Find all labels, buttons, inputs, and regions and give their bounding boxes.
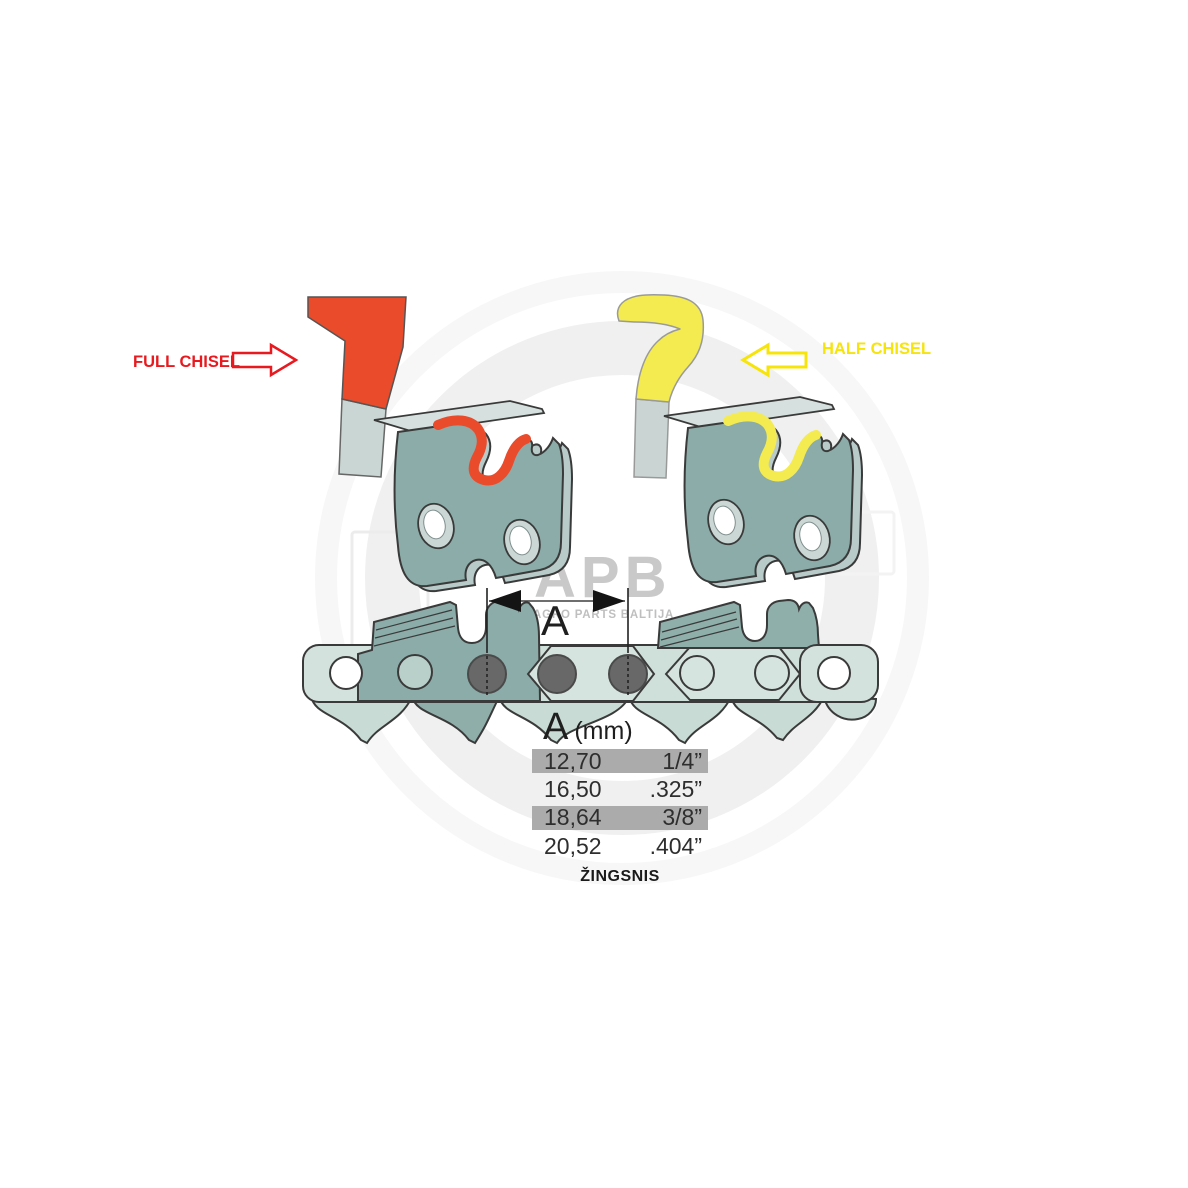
cutter-link-full-chisel <box>374 401 572 591</box>
pitch-inch: .325” <box>650 776 702 803</box>
pitch-inch: 1/4” <box>662 748 702 775</box>
pitch-caption: ŽINGSNIS <box>532 868 708 886</box>
table-row: 18,64 3/8” <box>532 806 708 830</box>
chain-rivet <box>538 655 576 693</box>
table-row: 20,52 .404” <box>532 834 708 858</box>
pitch-table: 12,70 1/4” 16,50 .325” 18,64 3/8” 20,52 … <box>532 749 708 863</box>
table-row: 12,70 1/4” <box>532 749 708 773</box>
chain-cutter-left <box>358 600 540 701</box>
header-symbol: A <box>543 706 568 748</box>
chain-hole <box>818 657 850 689</box>
header-unit: (mm) <box>574 717 632 745</box>
half-chisel-label: HALF CHISEL <box>822 340 931 359</box>
table-row: 16,50 .325” <box>532 777 708 801</box>
full-chisel-profile <box>308 297 406 477</box>
chain-hole <box>330 657 362 689</box>
pitch-mm: 12,70 <box>544 748 602 775</box>
pitch-mm: 16,50 <box>544 776 602 803</box>
half-chisel-shape <box>618 295 704 402</box>
full-chisel-shape <box>308 297 406 409</box>
pitch-inch: .404” <box>650 833 702 860</box>
cutter-link-half-chisel <box>664 397 862 587</box>
pitch-inch: 3/8” <box>662 804 702 831</box>
chain-hole-filled <box>398 655 432 689</box>
pitch-table-header: A(mm) <box>543 706 633 749</box>
pitch-mm: 18,64 <box>544 804 602 831</box>
pitch-mm: 20,52 <box>544 833 602 860</box>
chain-hole-outlined <box>680 656 714 690</box>
full-chisel-label: FULL CHISEL <box>133 353 240 372</box>
full-chisel-stem <box>339 399 386 477</box>
chain-hole-outlined <box>755 656 789 690</box>
drive-link-tooth <box>629 696 731 743</box>
half-chisel-stem <box>634 399 669 478</box>
dimension-label: A <box>541 597 569 645</box>
drive-link-tooth <box>311 696 412 743</box>
illustration <box>0 0 1188 1188</box>
arrow-left-icon <box>743 345 806 375</box>
arrow-right-icon <box>233 345 296 375</box>
chainsaw-chain-pitch-diagram: APB AGRO PARTS BALTIJA <box>0 0 1188 1188</box>
dimension-arrowhead-right <box>593 590 625 612</box>
drive-link-tooth <box>412 696 499 743</box>
